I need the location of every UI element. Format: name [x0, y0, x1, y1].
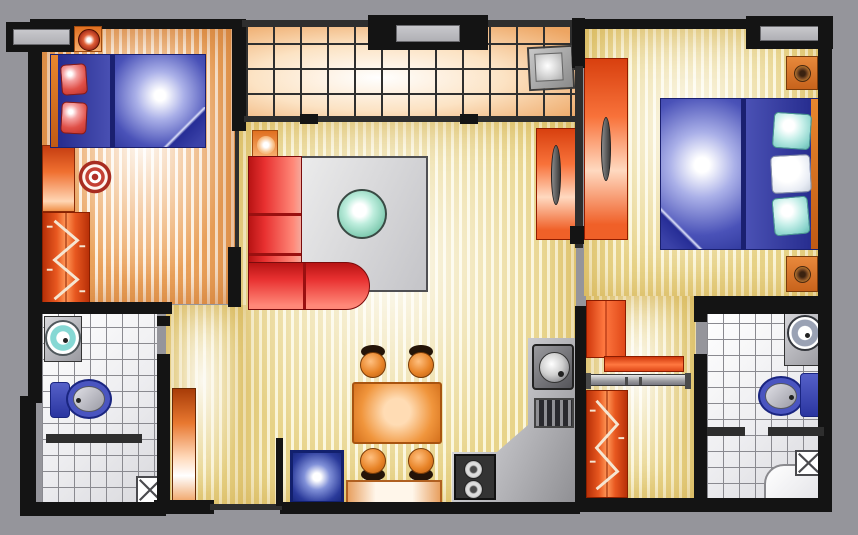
chair-seat — [360, 352, 386, 378]
wall-between-cabinets — [575, 66, 583, 248]
appliance-screen — [534, 52, 563, 81]
wall-bathroom1-right — [157, 354, 170, 508]
dining-chair-3 — [358, 443, 388, 481]
window-top-center-glass — [396, 25, 460, 42]
wall-entry-stub — [276, 438, 283, 506]
bedroom1-round-rug — [78, 160, 112, 194]
wall-bottom-right — [576, 498, 832, 512]
wall-bedroom1-balcony — [232, 19, 246, 131]
wall-bedroom2-bathroom2 — [694, 296, 826, 314]
wall-bathroom2-partition-a — [707, 427, 745, 436]
wall-bathroom2-partition-b — [768, 427, 824, 436]
x-mark-icon — [797, 452, 820, 474]
wall-entry-left — [154, 500, 214, 514]
entry-threshold — [210, 504, 282, 510]
toilet2-hinge — [789, 395, 794, 400]
slider-bedroom1-living — [235, 131, 239, 249]
teal-pillow-1 — [772, 112, 812, 151]
closet-wardrobe — [586, 390, 628, 498]
wall-left — [28, 45, 42, 403]
balcony-sliding-door-line — [244, 116, 576, 122]
bed-divider — [741, 99, 746, 249]
rail-cap — [685, 373, 691, 389]
slider-stop-right — [460, 114, 478, 124]
lamp-glow — [257, 136, 275, 154]
wall-living-stub — [570, 226, 584, 244]
red-pillow-1 — [60, 63, 88, 96]
bathroom1-washbasin — [45, 320, 81, 356]
dining-chair-1 — [358, 345, 388, 383]
bedroom1-duvet — [115, 55, 205, 147]
teal-pillow-2 — [771, 196, 810, 237]
chair-seat — [408, 352, 434, 378]
burner-2 — [464, 480, 483, 499]
wardrobe-handle — [601, 117, 611, 181]
window-top-left-glass — [13, 29, 70, 45]
chair-seat — [408, 448, 434, 474]
apartment-floor-plan — [0, 0, 858, 535]
living-floor-lamp — [252, 130, 278, 158]
hanging-rod-zigzag-icon — [43, 213, 89, 303]
sofa-seam — [303, 263, 306, 309]
wall-bottom-center — [280, 502, 580, 514]
bedroom1-bed — [50, 54, 206, 148]
cabinet-handle — [551, 145, 561, 205]
tv-cabinet-living — [536, 128, 576, 240]
burner-1 — [464, 460, 483, 479]
nightstand-lamp — [794, 266, 811, 283]
dish-rack — [534, 398, 574, 428]
wall-bathroom1-partition — [46, 434, 142, 443]
dining-table — [352, 382, 442, 444]
hanging-rod-zigzag-icon — [587, 391, 627, 497]
window-top-right-glass — [760, 26, 820, 41]
bed-divider — [110, 55, 115, 147]
nightstand-bottom — [786, 256, 818, 292]
toilet1-hinge — [76, 398, 81, 403]
wall-bathroom2-left — [694, 354, 707, 504]
entry-door-leaf — [172, 388, 196, 504]
wall-bedroom1-bottom — [36, 302, 172, 314]
sink-bowl — [539, 352, 570, 383]
rail-tick — [625, 377, 628, 385]
slider-stop-left — [300, 114, 318, 124]
red-pillow-2 — [60, 101, 88, 134]
basin-drain — [805, 333, 810, 338]
dining-chair-4 — [406, 443, 436, 481]
closet-shelf — [604, 356, 684, 372]
bedroom2-bed — [660, 98, 820, 250]
kitchen-sink — [532, 344, 574, 390]
rail-tick — [639, 377, 642, 385]
bedroom2-duvet — [661, 99, 743, 249]
nightstand-lamp — [794, 65, 811, 82]
sofa-vertical-arm — [248, 156, 302, 266]
wall-kitchen-closet — [575, 306, 586, 504]
closet-cabinet — [586, 300, 626, 358]
white-pillow — [770, 154, 812, 194]
entry-doormat — [290, 450, 344, 504]
nightstand-top — [786, 56, 818, 90]
wall-bathroom2-left-jamb — [694, 314, 707, 322]
window-top-center-frame — [368, 15, 488, 50]
balcony-appliance — [527, 45, 575, 91]
toilet1-bowl — [66, 379, 112, 419]
sofa-horizontal-arm — [248, 262, 370, 310]
coffee-table — [337, 189, 387, 239]
dining-chair-2 — [406, 345, 436, 383]
bedroom1-wardrobe — [42, 212, 90, 304]
clothes-rail — [586, 374, 690, 386]
bedroom2-wardrobe-panel — [584, 58, 628, 240]
duvet-fold — [153, 107, 205, 147]
lamp-shade — [78, 29, 100, 51]
wall-left-step — [20, 396, 36, 516]
bedroom1-headboard — [51, 55, 58, 147]
wall-right — [818, 19, 832, 512]
wall-bathroom1-right-jamb — [157, 316, 170, 326]
sofa-seam — [249, 253, 301, 256]
bedroom1-bedside-lamp — [74, 26, 102, 52]
duvet-fold — [661, 207, 711, 249]
toilet2-bowl — [758, 376, 804, 416]
chair-seat — [360, 448, 386, 474]
basin-drain — [63, 338, 68, 343]
sofa-seam — [249, 213, 301, 216]
stove — [454, 454, 496, 500]
wall-bottom-left — [20, 502, 166, 516]
wall-bedroom1-stub — [228, 247, 241, 307]
bedroom1-dresser — [42, 145, 75, 212]
sink-drain — [558, 371, 564, 377]
window-top-left-frame — [6, 22, 78, 52]
